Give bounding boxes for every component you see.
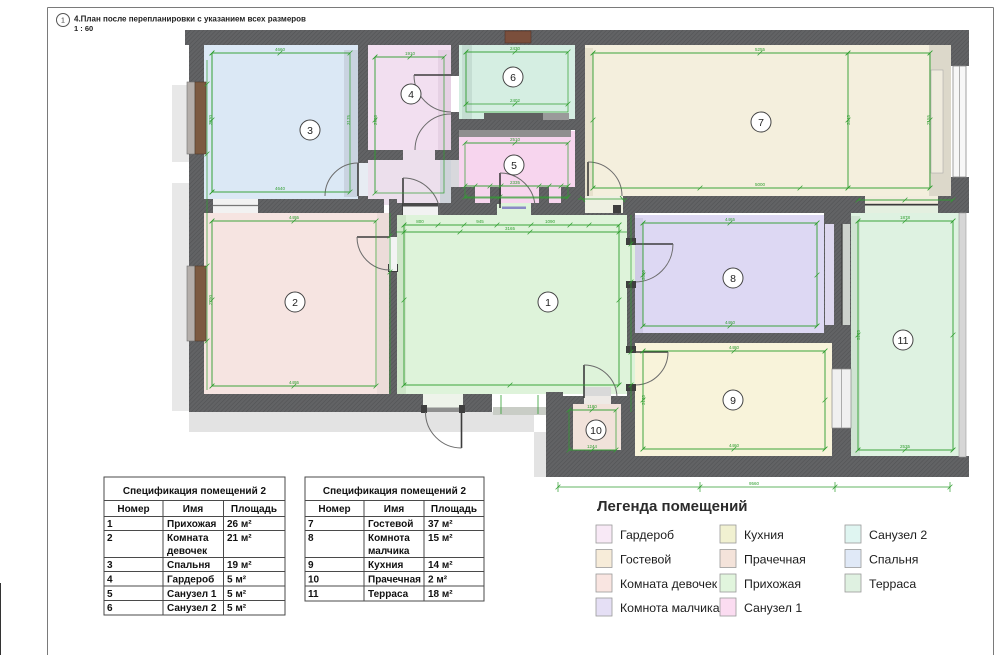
svg-text:9: 9 (730, 395, 736, 407)
svg-text:Спальня: Спальня (869, 553, 918, 567)
svg-text:Санузел 2: Санузел 2 (869, 528, 927, 542)
svg-text:2430: 2430 (510, 46, 521, 51)
svg-text:8: 8 (730, 273, 736, 285)
svg-text:1910: 1910 (405, 51, 416, 56)
svg-text:4465: 4465 (725, 217, 736, 222)
svg-text:Гардероб: Гардероб (167, 574, 214, 586)
svg-text:Кухния: Кухния (744, 528, 784, 542)
svg-text:1244: 1244 (587, 444, 598, 449)
svg-text:Имя: Имя (384, 504, 405, 515)
svg-text:1 : 60: 1 : 60 (74, 24, 93, 33)
svg-text:2335: 2335 (510, 180, 521, 185)
svg-text:Номер: Номер (318, 504, 350, 515)
svg-text:Комнота малчика: Комнота малчика (620, 601, 720, 615)
svg-text:3165: 3165 (505, 226, 516, 231)
svg-text:6: 6 (510, 72, 516, 84)
svg-text:Прихожая: Прихожая (744, 577, 801, 591)
svg-text:Санузел 1: Санузел 1 (744, 601, 802, 615)
svg-text:3175: 3175 (346, 114, 351, 125)
svg-text:26 м²: 26 м² (227, 519, 252, 530)
svg-text:1: 1 (61, 18, 65, 25)
svg-text:Спальня: Спальня (167, 560, 210, 571)
svg-text:4495: 4495 (289, 215, 300, 220)
svg-text:1180: 1180 (587, 404, 597, 409)
svg-text:Комнота: Комнота (368, 533, 410, 544)
svg-text:2510: 2510 (510, 137, 521, 142)
svg-text:Прихожая: Прихожая (167, 519, 217, 530)
svg-text:14 м²: 14 м² (428, 560, 453, 571)
svg-text:5 м²: 5 м² (227, 589, 247, 600)
svg-text:4480: 4480 (729, 345, 740, 350)
svg-text:Кухния: Кухния (368, 560, 404, 571)
svg-text:800: 800 (416, 219, 424, 224)
svg-text:19 м²: 19 м² (227, 560, 252, 571)
svg-text:Комната: Комната (167, 533, 209, 544)
svg-text:4: 4 (107, 575, 113, 586)
svg-text:4460: 4460 (725, 320, 736, 325)
svg-text:4495: 4495 (289, 380, 300, 385)
svg-text:Терраса: Терраса (869, 577, 916, 591)
svg-text:Площадь: Площадь (231, 504, 277, 515)
svg-text:2: 2 (107, 533, 113, 544)
svg-text:4: 4 (408, 89, 414, 101)
svg-text:945: 945 (476, 219, 484, 224)
svg-text:4.План после перепланировки с: 4.План после перепланировки с указанием … (74, 15, 306, 24)
svg-text:3300: 3300 (641, 269, 646, 280)
svg-text:Санузел 1: Санузел 1 (167, 589, 217, 600)
svg-text:3: 3 (307, 125, 313, 137)
svg-text:5 м²: 5 м² (227, 575, 247, 586)
svg-text:Прачечная: Прачечная (744, 553, 806, 567)
svg-text:10: 10 (590, 425, 602, 437)
svg-text:Санузел 2: Санузел 2 (167, 603, 217, 614)
svg-text:1878: 1878 (900, 215, 911, 220)
svg-text:15 м²: 15 м² (428, 533, 453, 544)
svg-text:4460: 4460 (729, 443, 740, 448)
svg-text:2958: 2958 (373, 114, 378, 125)
svg-text:4660: 4660 (275, 47, 286, 52)
svg-text:Комната девочек: Комната девочек (620, 577, 718, 591)
svg-text:Гардероб: Гардероб (620, 528, 674, 542)
svg-text:3135: 3135 (641, 394, 646, 405)
svg-text:Имя: Имя (183, 504, 204, 515)
svg-text:5: 5 (107, 589, 113, 600)
svg-text:21 м²: 21 м² (227, 533, 252, 544)
svg-text:1: 1 (107, 519, 113, 530)
svg-text:5275: 5275 (856, 329, 861, 340)
svg-text:37 м²: 37 м² (428, 519, 453, 530)
svg-text:2402: 2402 (510, 98, 521, 103)
svg-text:5255: 5255 (755, 47, 766, 52)
svg-text:Терраса: Терраса (368, 589, 409, 600)
svg-text:девочек: девочек (167, 546, 208, 557)
svg-text:2790: 2790 (208, 294, 213, 305)
svg-text:7: 7 (758, 117, 764, 129)
svg-text:2: 2 (292, 297, 298, 309)
svg-text:Легенда помещений: Легенда помещений (597, 498, 748, 515)
svg-text:3: 3 (107, 560, 113, 571)
svg-text:7: 7 (308, 519, 314, 530)
svg-text:11: 11 (898, 335, 909, 347)
svg-text:11: 11 (308, 589, 319, 600)
svg-text:Спецификация помещений 2: Спецификация помещений 2 (323, 485, 467, 497)
svg-text:3030: 3030 (208, 114, 213, 125)
svg-text:6: 6 (107, 603, 113, 614)
svg-text:10: 10 (308, 575, 320, 586)
svg-text:Площадь: Площадь (431, 504, 477, 515)
svg-text:3345: 3345 (846, 114, 851, 125)
svg-text:Гостевой: Гостевой (368, 519, 413, 530)
svg-text:1: 1 (545, 297, 551, 309)
svg-text:1090: 1090 (545, 219, 556, 224)
svg-text:8: 8 (308, 533, 314, 544)
svg-text:9: 9 (308, 560, 314, 571)
svg-text:2535: 2535 (900, 444, 911, 449)
svg-text:18 м²: 18 м² (428, 589, 453, 600)
svg-text:2 м²: 2 м² (428, 575, 448, 586)
svg-text:Номер: Номер (117, 504, 149, 515)
svg-text:5: 5 (511, 160, 517, 172)
svg-text:9560: 9560 (749, 481, 760, 486)
svg-text:Прачечная: Прачечная (368, 575, 421, 586)
svg-text:малчика: малчика (368, 546, 410, 557)
svg-text:5000: 5000 (755, 182, 766, 187)
svg-text:Гостевой: Гостевой (620, 553, 671, 567)
svg-text:4640: 4640 (275, 186, 286, 191)
svg-text:Спецификация помещений 2: Спецификация помещений 2 (123, 485, 267, 497)
svg-text:2155: 2155 (926, 114, 931, 125)
svg-text:5 м²: 5 м² (227, 603, 247, 614)
